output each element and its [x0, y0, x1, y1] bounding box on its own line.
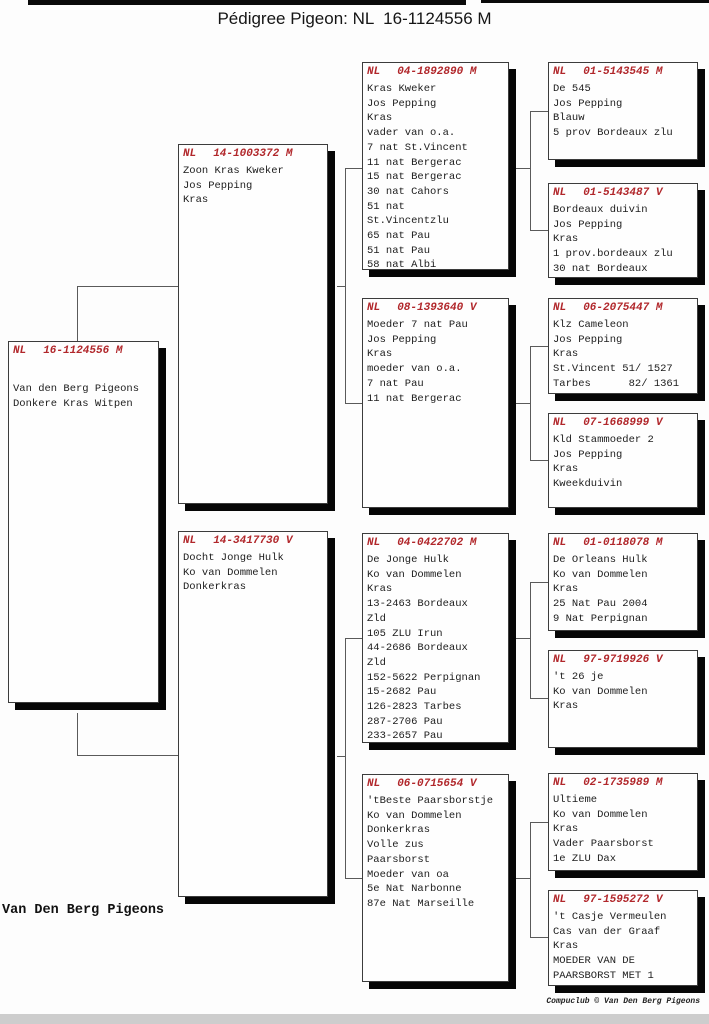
ring-id: 04-1892890 M: [397, 66, 476, 78]
pedigree-box-dam-sire: NL04-0422702 M De Jonge Hulk Ko van Domm…: [362, 533, 509, 743]
pedigree-box-subject: NL16-1124556 M Van den Berg Pigeons Donk…: [8, 341, 159, 703]
ring-number: NL01-5143545 M: [553, 65, 695, 79]
ring-number: NL16-1124556 M: [13, 344, 156, 358]
connector-line: [530, 822, 531, 938]
pigeon-details: 't 26 je Ko van Dommelen Kras: [553, 670, 695, 714]
ring-country: NL: [553, 417, 566, 429]
ring-id: 97-1595272 V: [583, 894, 662, 906]
connector-line: [77, 286, 78, 341]
pigeon-details: De Jonge Hulk Ko van Dommelen Kras 13-24…: [367, 553, 506, 743]
connector-line: [77, 755, 178, 756]
connector-line: [345, 168, 362, 169]
ring-number: NL08-1393640 V: [367, 301, 506, 315]
pigeon-details: De 545 Jos Pepping Blauw 5 prov Bordeaux…: [553, 82, 695, 141]
ring-country: NL: [553, 894, 566, 906]
scan-edge-bottom: [0, 1014, 709, 1024]
ring-id: 01-5143487 V: [583, 187, 662, 199]
ring-id: 14-3417730 V: [213, 535, 292, 547]
owner-signature: Van Den Berg Pigeons: [2, 903, 164, 918]
ring-id: 16-1124556 M: [43, 345, 122, 357]
ring-country: NL: [367, 537, 380, 549]
ring-id: 14-1003372 M: [213, 148, 292, 160]
connector-line: [530, 346, 531, 461]
ring-number: NL01-5143487 V: [553, 186, 695, 200]
ring-number: NL97-9719926 V: [553, 653, 695, 667]
connector-line: [345, 403, 362, 404]
connector-line: [516, 638, 531, 639]
ring-number: NL14-1003372 M: [183, 147, 325, 161]
pedigree-box-sire-dam: NL08-1393640 V Moeder 7 nat Pau Jos Pepp…: [362, 298, 509, 508]
pedigree-box-dam-sire-dam: NL97-9719926 V 't 26 je Ko van Dommelen …: [548, 650, 698, 748]
pedigree-box-sire-sire: NL04-1892890 M Kras Kweker Jos Pepping K…: [362, 62, 509, 270]
ring-number: NL06-2075447 M: [553, 301, 695, 315]
ring-number: NL04-1892890 M: [367, 65, 506, 79]
pigeon-details: De Orleans Hulk Ko van Dommelen Kras 25 …: [553, 553, 695, 627]
ring-number: NL07-1668999 V: [553, 416, 695, 430]
connector-line: [516, 878, 531, 879]
ring-number: NL06-0715654 V: [367, 777, 506, 791]
ring-id: 01-0118078 M: [583, 537, 662, 549]
pigeon-details: Kras Kweker Jos Pepping Kras vader van o…: [367, 82, 506, 270]
connector-line: [530, 698, 548, 699]
pigeon-details: Kld Stammoeder 2 Jos Pepping Kras Kweekd…: [553, 433, 695, 492]
ring-id: 08-1393640 V: [397, 302, 476, 314]
connector-line: [77, 286, 178, 287]
ring-country: NL: [553, 66, 566, 78]
connector-line: [530, 460, 548, 461]
ring-country: NL: [553, 537, 566, 549]
pedigree-box-sire-dam-dam: NL07-1668999 V Kld Stammoeder 2 Jos Pepp…: [548, 413, 698, 508]
connector-line: [530, 230, 548, 231]
scan-edge-top-left: [28, 0, 466, 5]
connector-line: [345, 638, 362, 639]
ring-id: 06-0715654 V: [397, 778, 476, 790]
ring-id: 07-1668999 V: [583, 417, 662, 429]
ring-id: 97-9719926 V: [583, 654, 662, 666]
ring-country: NL: [553, 654, 566, 666]
ring-number: NL97-1595272 V: [553, 893, 695, 907]
ring-country: NL: [367, 778, 380, 790]
connector-line: [77, 713, 78, 756]
connector-line: [530, 582, 531, 699]
pedigree-box-dam-dam-dam: NL97-1595272 V 't Casje Vermeulen Cas va…: [548, 890, 698, 986]
ring-country: NL: [13, 345, 26, 357]
pigeon-details: Van den Berg Pigeons Donkere Kras Witpen: [13, 382, 156, 411]
ring-number: NL04-0422702 M: [367, 536, 506, 550]
connector-line: [530, 111, 548, 112]
pedigree-box-sire: NL14-1003372 M Zoon Kras Kweker Jos Pepp…: [178, 144, 328, 504]
connector-line: [530, 346, 548, 347]
ring-number: NL02-1735989 M: [553, 776, 695, 790]
connector-line: [516, 403, 531, 404]
pedigree-box-dam: NL14-3417730 V Docht Jonge Hulk Ko van D…: [178, 531, 328, 897]
ring-country: NL: [553, 302, 566, 314]
footer-credit: Compuclub © Van Den Berg Pigeons: [546, 997, 700, 1006]
pedigree-box-sire-sire-dam: NL01-5143487 V Bordeaux duivin Jos Peppi…: [548, 183, 698, 278]
connector-line: [345, 638, 346, 879]
pedigree-box-dam-sire-sire: NL01-0118078 M De Orleans Hulk Ko van Do…: [548, 533, 698, 631]
pigeon-details: Moeder 7 nat Pau Jos Pepping Kras moeder…: [367, 318, 506, 406]
connector-line: [530, 937, 548, 938]
pigeon-details: Zoon Kras Kweker Jos Pepping Kras: [183, 164, 325, 208]
pigeon-details: 't Casje Vermeulen Cas van der Graaf Kra…: [553, 910, 695, 984]
pedigree-page: Pédigree Pigeon: NL 16-1124556 M NL16-11…: [0, 0, 709, 1024]
scan-edge-top-right: [481, 0, 709, 3]
connector-line: [530, 822, 548, 823]
ring-country: NL: [183, 535, 196, 547]
pigeon-details: Bordeaux duivin Jos Pepping Kras 1 prov.…: [553, 203, 695, 277]
ring-id: 01-5143545 M: [583, 66, 662, 78]
pedigree-box-sire-dam-sire: NL06-2075447 M Klz Cameleon Jos Pepping …: [548, 298, 698, 394]
ring-id: 04-0422702 M: [397, 537, 476, 549]
connector-line: [516, 168, 531, 169]
ring-number: NL01-0118078 M: [553, 536, 695, 550]
ring-country: NL: [367, 66, 380, 78]
page-title: Pédigree Pigeon: NL 16-1124556 M: [0, 9, 709, 29]
pedigree-box-dam-dam: NL06-0715654 V 'tBeste Paarsborstje Ko v…: [362, 774, 509, 982]
ring-country: NL: [367, 302, 380, 314]
pedigree-box-dam-dam-sire: NL02-1735989 M Ultieme Ko van Dommelen K…: [548, 773, 698, 871]
connector-line: [345, 168, 346, 404]
ring-country: NL: [183, 148, 196, 160]
pigeon-details: Ultieme Ko van Dommelen Kras Vader Paars…: [553, 793, 695, 867]
ring-country: NL: [553, 777, 566, 789]
pedigree-box-sire-sire-sire: NL01-5143545 M De 545 Jos Pepping Blauw …: [548, 62, 698, 160]
ring-id: 06-2075447 M: [583, 302, 662, 314]
ring-country: NL: [553, 187, 566, 199]
connector-line: [345, 878, 362, 879]
pigeon-details: 'tBeste Paarsborstje Ko van Dommelen Don…: [367, 794, 506, 912]
ring-id: 02-1735989 M: [583, 777, 662, 789]
connector-line: [530, 582, 548, 583]
pigeon-details: Docht Jonge Hulk Ko van Dommelen Donkerk…: [183, 551, 325, 595]
pigeon-details: Klz Cameleon Jos Pepping Kras St.Vincent…: [553, 318, 695, 392]
connector-line: [530, 111, 531, 231]
ring-number: NL14-3417730 V: [183, 534, 325, 548]
